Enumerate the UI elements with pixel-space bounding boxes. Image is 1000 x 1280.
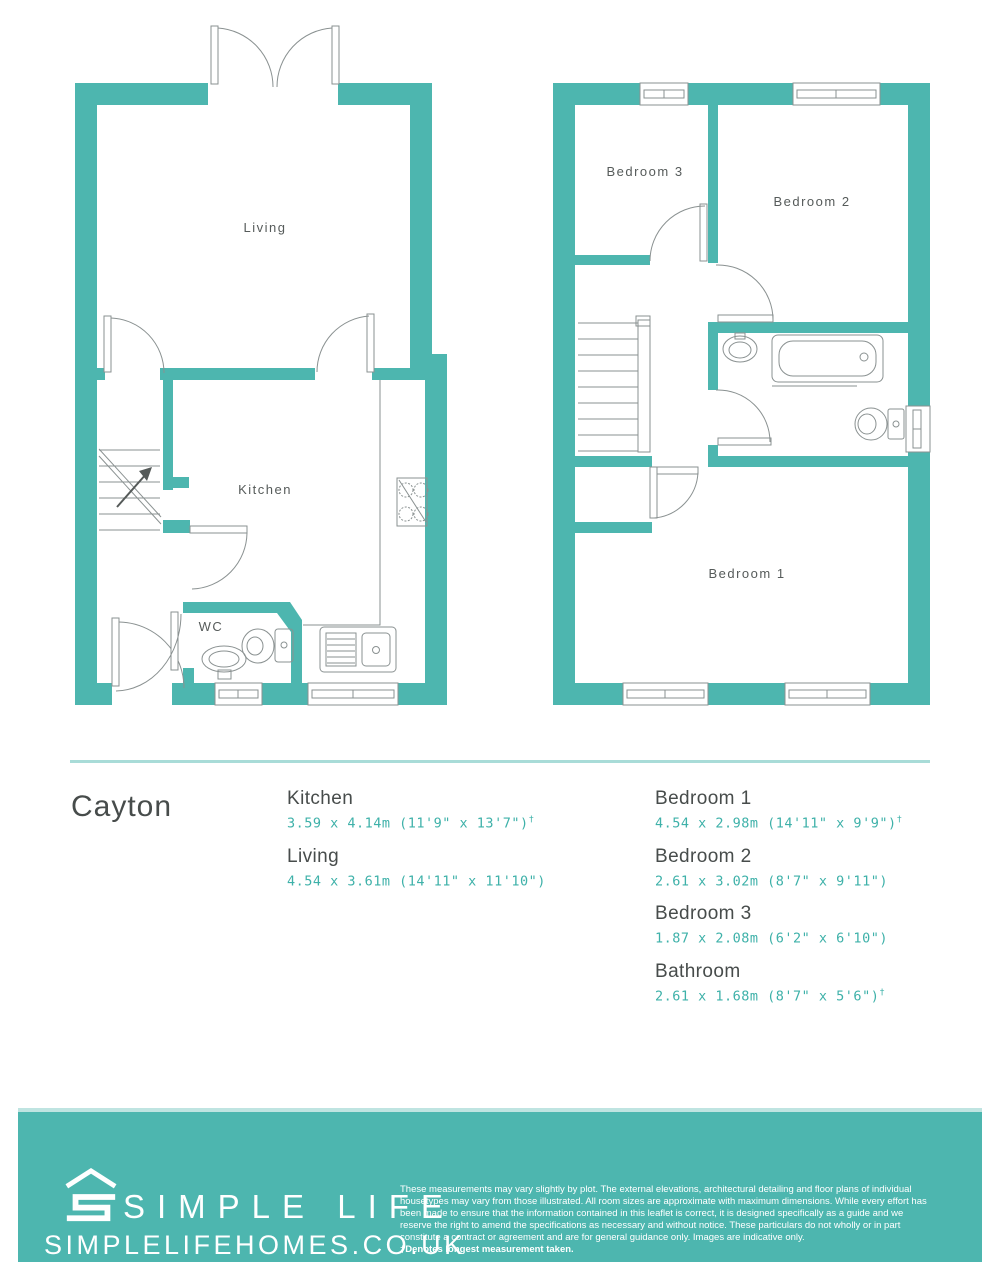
ground-floor-stairs-icon bbox=[99, 449, 161, 530]
dimension-row: Bedroom 2 2.61 x 3.02m (8'7" x 9'11") bbox=[655, 846, 985, 890]
ground-floor-walls bbox=[75, 83, 447, 705]
room-name: Bedroom 3 bbox=[655, 903, 985, 925]
floorplans-drawing: Living Kitchen WC bbox=[0, 0, 1000, 760]
living-room-label: Living bbox=[244, 220, 287, 235]
room-name: Kitchen bbox=[287, 788, 617, 810]
dimension-row: Kitchen 3.59 x 4.14m (11'9" x 13'7")† bbox=[287, 788, 617, 832]
bedroom1-room-label: Bedroom 1 bbox=[708, 566, 785, 581]
room-size: 4.54 x 2.98m (14'11" x 9'9")† bbox=[655, 815, 985, 832]
first-floor-stairs-icon bbox=[578, 316, 650, 452]
floorplan-leaflet: Living Kitchen WC bbox=[0, 0, 1000, 1280]
room-size: 3.59 x 4.14m (11'9" x 13'7")† bbox=[287, 815, 617, 832]
disclaimer-bold-line: †Denotes longest measurement taken. bbox=[400, 1244, 935, 1256]
living-kitchen-door bbox=[317, 314, 374, 372]
dimensions-column-left: Kitchen 3.59 x 4.14m (11'9" x 13'7")† Li… bbox=[287, 788, 617, 903]
plan-name: Cayton bbox=[71, 790, 172, 824]
living-hall-door bbox=[104, 316, 164, 373]
disclaimer-text: These measurements may vary slightly by … bbox=[400, 1184, 935, 1256]
hob-icon bbox=[397, 478, 428, 526]
first-floor-plan: Bedroom 3 Bedroom 2 Bedroom 1 bbox=[553, 83, 930, 705]
bedroom3-door bbox=[650, 204, 707, 261]
bedroom2-door bbox=[716, 265, 773, 322]
room-size: 1.87 x 2.08m (6'2" x 6'10") bbox=[655, 930, 985, 947]
bedroom3-window bbox=[640, 83, 688, 105]
bedroom1-door bbox=[650, 467, 698, 518]
bathroom-window bbox=[906, 406, 930, 452]
wc-window bbox=[215, 683, 262, 705]
kitchen-room-label: Kitchen bbox=[238, 482, 292, 497]
room-name: Bedroom 1 bbox=[655, 788, 985, 810]
bedroom2-window bbox=[793, 83, 880, 105]
bathroom-door bbox=[716, 390, 771, 445]
room-name: Living bbox=[287, 846, 617, 868]
simple-life-logo-icon bbox=[62, 1166, 120, 1226]
room-size: 4.54 x 3.61m (14'11" x 11'10") bbox=[287, 873, 617, 890]
room-name: Bathroom bbox=[655, 961, 985, 983]
bathroom-basin-icon bbox=[723, 333, 757, 362]
wc-toilet-icon bbox=[242, 629, 293, 663]
ground-floor-plan: Living Kitchen WC bbox=[75, 26, 447, 705]
dimension-row: Bedroom 3 1.87 x 2.08m (6'2" x 6'10") bbox=[655, 903, 985, 947]
wc-door bbox=[116, 612, 181, 691]
bedroom2-room-label: Bedroom 2 bbox=[773, 194, 850, 209]
bathroom-toilet-icon bbox=[855, 408, 904, 440]
dagger-mark: † bbox=[529, 815, 535, 825]
bedroom3-room-label: Bedroom 3 bbox=[606, 164, 683, 179]
room-name: Bedroom 2 bbox=[655, 846, 985, 868]
kitchen-counter bbox=[303, 380, 380, 625]
french-doors bbox=[211, 26, 339, 87]
kitchen-window bbox=[308, 683, 398, 705]
bathtub-icon bbox=[772, 335, 883, 386]
bedroom1-window-right bbox=[785, 683, 870, 705]
dagger-mark: † bbox=[897, 815, 903, 825]
kitchen-door bbox=[190, 526, 247, 589]
dimension-row: Bathroom 2.61 x 1.68m (8'7" x 5'6")† bbox=[655, 961, 985, 1005]
room-size: 2.61 x 1.68m (8'7" x 5'6")† bbox=[655, 988, 985, 1005]
dimension-row: Living 4.54 x 3.61m (14'11" x 11'10") bbox=[287, 846, 617, 890]
room-size: 2.61 x 3.02m (8'7" x 9'11") bbox=[655, 873, 985, 890]
footer: SIMPLE LIFE SIMPLELIFEHOMES.CO.UK These … bbox=[18, 1112, 982, 1262]
kitchen-sink-icon bbox=[320, 627, 396, 672]
wc-room-label: WC bbox=[199, 619, 224, 634]
dimension-row: Bedroom 1 4.54 x 2.98m (14'11" x 9'9")† bbox=[655, 788, 985, 832]
bedroom1-window-left bbox=[623, 683, 708, 705]
section-divider bbox=[70, 760, 930, 763]
dimensions-column-right: Bedroom 1 4.54 x 2.98m (14'11" x 9'9")† … bbox=[655, 788, 985, 1018]
dagger-mark: † bbox=[879, 988, 885, 998]
wc-basin-icon bbox=[202, 646, 246, 679]
